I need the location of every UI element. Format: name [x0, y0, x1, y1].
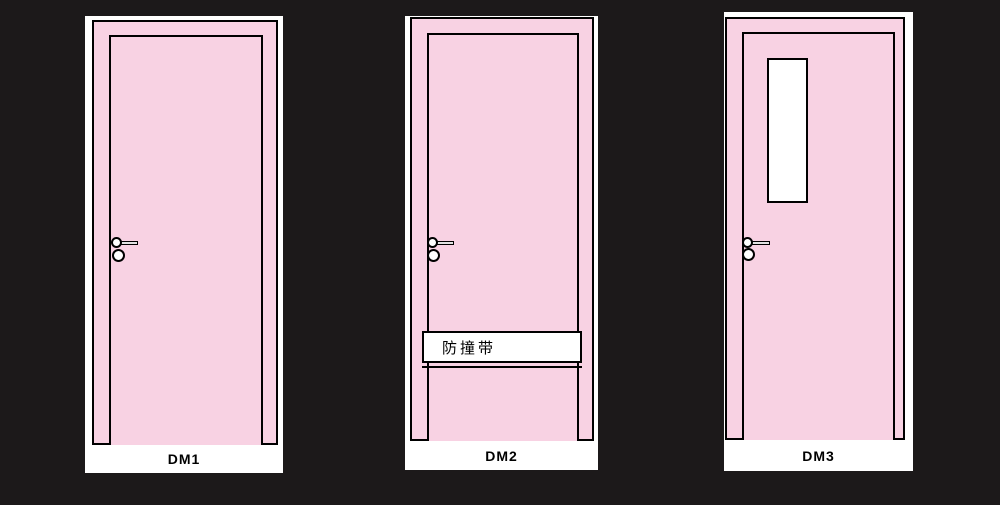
door-label: DM3: [802, 448, 835, 464]
door-label-strip: DM1: [85, 445, 283, 473]
door-label-strip: DM2: [405, 441, 598, 470]
handle-rose-icon: [427, 237, 438, 248]
bumper-strip-label: 防撞带: [424, 337, 496, 358]
door-label: DM2: [485, 448, 518, 464]
door-figure-dm3: DM3: [724, 12, 913, 471]
handle-rose-icon: [742, 237, 753, 248]
bumper-strip: 防撞带: [422, 331, 582, 363]
door-leaf: [109, 35, 263, 445]
door-label-strip: DM3: [724, 440, 913, 471]
handle-knob-icon: [427, 249, 440, 262]
handle-knob-icon: [742, 248, 755, 261]
door-elevation-diagram: DM1 防撞带 DM2 DM3: [0, 0, 1000, 505]
door-leaf: [427, 33, 579, 441]
door-leaf: [742, 32, 895, 440]
handle-knob-icon: [112, 249, 125, 262]
door-figure-dm1: DM1: [85, 16, 283, 473]
handle-rose-icon: [111, 237, 122, 248]
door-label: DM1: [168, 451, 201, 467]
vision-panel: [767, 58, 808, 203]
bumper-strip-lower-line: [422, 366, 582, 368]
door-figure-dm2: 防撞带 DM2: [405, 16, 598, 470]
